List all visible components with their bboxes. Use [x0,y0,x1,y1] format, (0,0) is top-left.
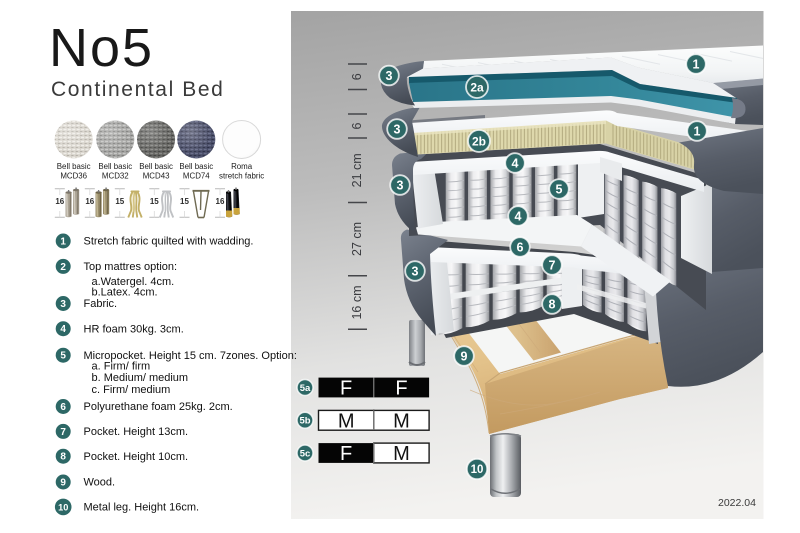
svg-text:M: M [393,410,410,432]
svg-text:5: 5 [60,351,66,362]
svg-text:4: 4 [515,210,522,224]
svg-text:6: 6 [60,402,66,413]
svg-text:21 cm: 21 cm [350,153,364,187]
svg-text:Bell basic: Bell basic [98,162,132,171]
svg-text:3: 3 [412,265,419,279]
svg-text:5: 5 [556,183,563,197]
svg-text:Continental Bed: Continental Bed [51,78,224,101]
svg-text:10: 10 [471,464,484,476]
svg-text:2022.04: 2022.04 [718,497,756,509]
svg-text:MCD32: MCD32 [102,172,129,181]
svg-text:3: 3 [60,299,66,310]
svg-text:M: M [338,410,355,432]
svg-text:a. Firm/ firm: a. Firm/ firm [92,361,151,373]
svg-text:5a: 5a [300,383,311,394]
svg-text:1: 1 [694,125,701,139]
svg-text:10: 10 [58,502,68,512]
svg-text:F: F [395,378,407,400]
svg-text:MCD74: MCD74 [183,172,210,181]
svg-text:7: 7 [60,427,66,438]
svg-text:5c: 5c [300,448,311,459]
svg-text:15: 15 [150,197,159,206]
svg-text:15: 15 [180,197,189,206]
svg-text:Pocket. Height 10cm.: Pocket. Height 10cm. [84,451,189,463]
svg-text:16: 16 [85,197,94,206]
svg-text:2: 2 [60,262,66,273]
svg-text:No5: No5 [49,18,154,78]
svg-text:MCD36: MCD36 [60,172,87,181]
svg-text:F: F [340,443,352,465]
svg-text:Fabric.: Fabric. [84,298,118,310]
svg-text:15: 15 [115,197,124,206]
svg-text:6: 6 [350,122,364,129]
svg-text:8: 8 [549,298,556,312]
svg-text:16: 16 [55,197,64,206]
svg-text:3: 3 [394,123,401,137]
svg-text:M: M [393,443,410,465]
svg-text:16 cm: 16 cm [350,285,364,319]
svg-text:2b: 2b [472,134,486,148]
svg-text:2a: 2a [470,80,484,94]
svg-text:1: 1 [693,58,700,72]
svg-text:MCD43: MCD43 [143,172,170,181]
svg-text:5b: 5b [299,416,310,427]
svg-text:3: 3 [397,179,404,193]
svg-text:4: 4 [60,324,66,335]
svg-text:b. Medium/ medium: b. Medium/ medium [92,372,189,384]
svg-text:Top mattres option:: Top mattres option: [84,261,178,273]
svg-text:6: 6 [517,241,524,255]
svg-text:HR foam 30kg. 3cm.: HR foam 30kg. 3cm. [84,323,184,335]
svg-text:Polyurethane foam 25kg. 2cm.: Polyurethane foam 25kg. 2cm. [84,401,233,413]
svg-text:8: 8 [60,452,66,463]
svg-text:27 cm: 27 cm [350,222,364,256]
svg-text:9: 9 [461,350,468,364]
svg-text:b.Latex. 4cm.: b.Latex. 4cm. [92,286,158,298]
svg-text:F: F [340,378,352,400]
svg-text:9: 9 [60,478,66,489]
svg-text:Stretch fabric quilted with wa: Stretch fabric quilted with wadding. [84,236,254,248]
svg-text:Bell basic: Bell basic [179,162,213,171]
svg-text:stretch fabric: stretch fabric [219,172,264,181]
svg-text:7: 7 [549,259,556,273]
svg-text:Wood.: Wood. [84,477,116,489]
svg-text:16: 16 [216,197,225,206]
svg-text:Roma: Roma [231,162,253,171]
svg-text:c. Firm/ medium: c. Firm/ medium [92,384,171,396]
svg-text:Bell basic: Bell basic [139,162,173,171]
svg-text:Pocket. Height 13cm.: Pocket. Height 13cm. [84,426,189,438]
svg-text:Metal leg. Height 16cm.: Metal leg. Height 16cm. [84,502,200,514]
svg-text:6: 6 [350,73,364,80]
svg-text:Bell basic: Bell basic [57,162,91,171]
svg-text:3: 3 [386,69,393,83]
svg-text:1: 1 [60,237,66,248]
svg-text:4: 4 [512,157,519,171]
